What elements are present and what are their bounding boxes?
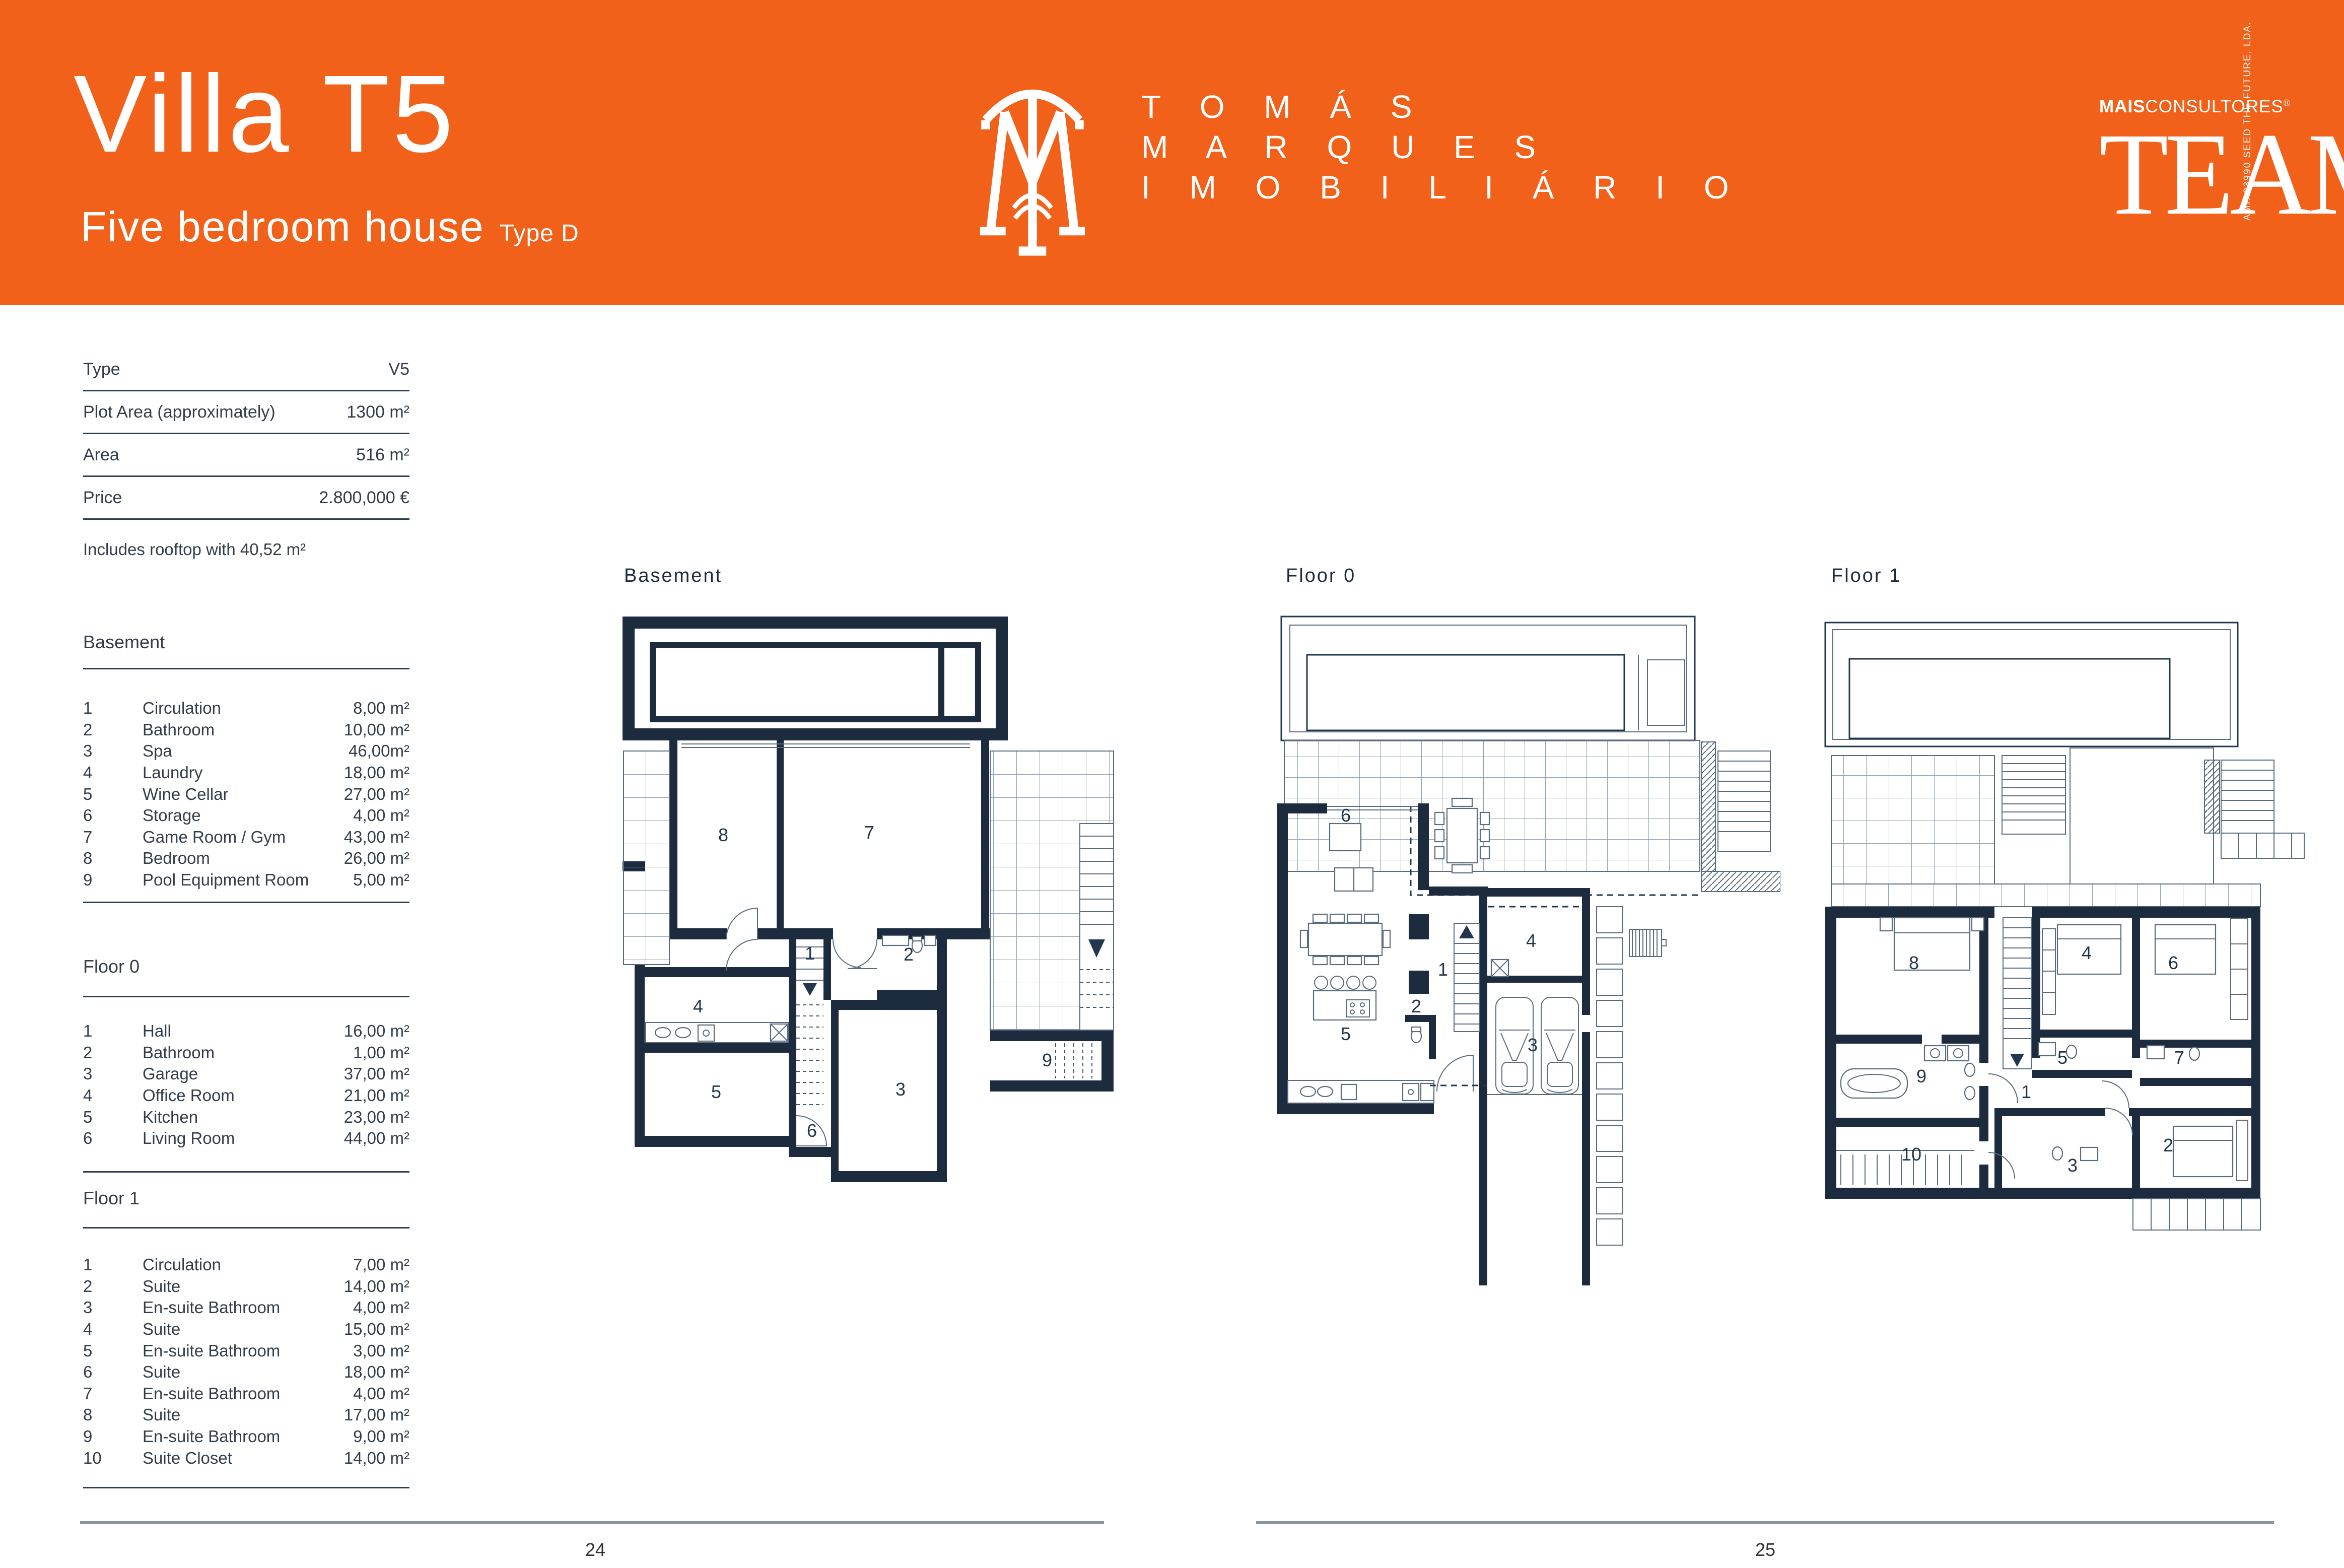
cell: Type	[83, 360, 388, 379]
cell: Suite	[143, 1405, 344, 1424]
room-number-label: 6	[1341, 805, 1351, 826]
room-number-label: 2	[904, 944, 914, 965]
footer-rule-left	[80, 1521, 1104, 1524]
rooftop-note: Includes rooftop with 40,52 m²	[83, 540, 306, 559]
footer-rule-right	[1256, 1521, 2274, 1524]
section-floor1: Floor 1 1Circulation7,00 m²2Suite14,00 m…	[83, 1188, 409, 1500]
car	[1541, 997, 1578, 1094]
room-number-label: 2	[1411, 996, 1421, 1016]
cell: 1300 m²	[347, 402, 409, 422]
cell: 6	[83, 1129, 143, 1148]
entrance-door	[1430, 1055, 1487, 1092]
cell: 5	[83, 785, 143, 804]
cell: 7	[83, 1384, 143, 1403]
divider	[83, 668, 409, 669]
section-floor1-rows: 1Circulation7,00 m²2Suite14,00 m²3En-sui…	[83, 1254, 409, 1469]
room-number-label: 9	[1916, 1066, 1926, 1086]
room-number-label: 1	[1438, 959, 1448, 980]
pool-equipment-room-stairs	[1056, 1043, 1092, 1078]
room-number-label: 1	[2021, 1081, 2031, 1102]
section-basement: Basement 1Circulation8,00 m²2Bathroom10,…	[83, 632, 409, 914]
subtitle-type: Type D	[500, 220, 579, 247]
planter-strip	[1701, 742, 1715, 871]
brand-line-3: I M O B I L I Á R I O	[1141, 167, 1744, 208]
cell: 9,00 m²	[353, 1427, 409, 1446]
cell: Wine Cellar	[143, 785, 344, 804]
cell: Circulation	[143, 699, 353, 718]
page-number-left: 24	[575, 1539, 615, 1560]
cell: Plot Area (approximately)	[83, 402, 347, 422]
room-number-label: 8	[718, 825, 728, 845]
brand-line-1: T O M Á S	[1141, 87, 1744, 127]
table-row: 1Circulation8,00 m²	[83, 698, 409, 719]
cell: Laundry	[143, 763, 344, 782]
cell: 1	[83, 699, 143, 718]
cell: 3	[83, 741, 143, 761]
room-number-label: 6	[807, 1120, 817, 1141]
cell: 6	[83, 1362, 143, 1382]
tm-monogram-icon	[957, 64, 1108, 261]
page-number-right: 25	[1745, 1539, 1785, 1560]
room-number-label: 2	[2163, 1135, 2173, 1155]
planter-strip	[2204, 760, 2220, 833]
cell: 2	[83, 1043, 143, 1062]
cell: 3	[83, 1064, 143, 1083]
section-basement-rows: 1Circulation8,00 m²2Bathroom10,00 m²3Spa…	[83, 698, 409, 891]
balcony	[2133, 1199, 2260, 1230]
cell: 10	[83, 1449, 143, 1468]
room-number-label: 4	[693, 996, 703, 1016]
terrace-stairs	[1080, 824, 1114, 1030]
garden-stairs	[1718, 751, 1770, 852]
laundry-fixtures	[646, 1022, 789, 1043]
table-row: 6Living Room44,00 m²	[83, 1128, 409, 1149]
table-row: 5En-suite Bathroom3,00 m²	[83, 1340, 409, 1361]
bath9-fixtures	[1841, 1046, 1975, 1100]
cell: 4,00 m²	[353, 1298, 409, 1317]
room-number-label: 5	[1341, 1024, 1351, 1044]
floor0-floorplan: 651243	[1277, 612, 1780, 1287]
brand-line-2: M A R Q U E S	[1141, 127, 1744, 167]
header-band: Villa T5 Five bedroom houseType D	[0, 0, 2344, 305]
cell: 15,00 m²	[344, 1320, 409, 1339]
cell: 17,00 m²	[344, 1405, 409, 1424]
section-floor0: Floor 0 1Hall16,00 m²2Bathroom1,00 m²3Ga…	[83, 956, 409, 1183]
table-row: Area516 m²	[83, 434, 409, 477]
room-number-label: 3	[2067, 1155, 2078, 1176]
cell: Storage	[143, 806, 353, 825]
subtitle-text: Five bedroom house	[81, 203, 485, 250]
table-row: 1Circulation7,00 m²	[83, 1254, 409, 1276]
suite2-furniture	[2173, 1120, 2248, 1181]
partner-license-vertical-text: AMI: 23990 SEED THE FUTURE, LDA.	[2242, 21, 2253, 221]
table-row: 7Game Room / Gym43,00 m²	[83, 827, 409, 848]
floor0-walls	[1277, 803, 1590, 1285]
cell: Garage	[143, 1064, 344, 1083]
suite4-furniture	[2042, 925, 2121, 1014]
cell: Hall	[143, 1021, 344, 1041]
floor1-stairs	[2003, 918, 2031, 1069]
cell: 7,00 m²	[353, 1255, 409, 1274]
brand-wordmark: T O M Á S M A R Q U E S I M O B I L I Á …	[1141, 87, 1744, 208]
skylight-slats	[2002, 756, 2065, 834]
cell: 16,00 m²	[344, 1021, 409, 1041]
cell: 14,00 m²	[344, 1277, 409, 1296]
cell: 5,00 m²	[353, 870, 409, 890]
cell: 18,00 m²	[344, 1362, 409, 1382]
table-row: 1Hall16,00 m²	[83, 1020, 409, 1042]
cell: 4	[83, 1320, 143, 1339]
divider	[83, 902, 409, 903]
cell: 8,00 m²	[353, 699, 409, 718]
section-basement-title: Basement	[83, 632, 165, 653]
section-floor1-title: Floor 1	[83, 1188, 140, 1209]
room-number-label: 7	[864, 822, 874, 843]
table-row: 4Office Room21,00 m²	[83, 1085, 409, 1107]
hall-stairs	[1454, 923, 1479, 1032]
door-gap	[1979, 1063, 1988, 1086]
cell: Suite	[143, 1362, 344, 1382]
cell: 3,00 m²	[353, 1341, 409, 1360]
cell: 21,00 m²	[344, 1086, 409, 1105]
basement-plan-title: Basement	[624, 565, 722, 587]
cell: Living Room	[143, 1129, 344, 1148]
cell: Spa	[143, 741, 349, 761]
bath7-fixtures	[2147, 1046, 2199, 1060]
suite8-furniture	[1880, 918, 1984, 970]
cell: 5	[83, 1108, 143, 1127]
door-arcs	[1988, 1074, 2132, 1179]
cell: 23,00 m²	[344, 1108, 409, 1127]
table-row: 2Bathroom1,00 m²	[83, 1042, 409, 1064]
room-number-label: 10	[1901, 1144, 1921, 1165]
divider	[83, 1487, 409, 1488]
cell: Bathroom	[143, 1043, 353, 1062]
cell: 43,00 m²	[344, 828, 409, 847]
pool	[1281, 617, 1695, 740]
roof-terrace	[1831, 756, 1994, 884]
brochure-page: Villa T5 Five bedroom houseType D	[0, 0, 2344, 1568]
table-row: 3En-suite Bathroom4,00 m²	[83, 1297, 409, 1319]
section-floor0-title: Floor 0	[83, 956, 140, 977]
cell: 5	[83, 1341, 143, 1360]
cell: 46,00m²	[349, 741, 409, 761]
cell: 516 m²	[356, 445, 409, 465]
floor1-floorplan: 89104567123	[1821, 617, 2317, 1251]
cell: 7	[83, 828, 143, 847]
room-number-label: 8	[1909, 952, 1919, 973]
roof-edge-band	[1831, 884, 2260, 907]
room-number-label: 4	[1526, 930, 1536, 951]
room-number-label: 5	[2057, 1047, 2067, 1068]
table-row: 5Wine Cellar27,00 m²	[83, 783, 409, 805]
divider	[83, 1227, 409, 1229]
cell: 4	[83, 1086, 143, 1105]
cell: 8	[83, 1405, 143, 1424]
cell: Bedroom	[143, 849, 344, 868]
cell: 4	[83, 763, 143, 782]
cell: En-suite Bathroom	[143, 1298, 353, 1317]
stepping-stones	[1597, 907, 1623, 1245]
cell: 1,00 m²	[353, 1043, 409, 1062]
table-row: 2Suite14,00 m²	[83, 1276, 409, 1298]
room-number-label: 7	[2174, 1047, 2184, 1068]
table-row: 4Laundry18,00 m²	[83, 762, 409, 784]
cell: Bathroom	[143, 720, 344, 739]
table-row: Price2.800,000 €	[83, 477, 409, 520]
basement-stairs	[796, 947, 826, 1146]
cell: 9	[83, 1427, 143, 1446]
cell: Suite Closet	[143, 1449, 344, 1468]
table-row: 9En-suite Bathroom9,00 m²	[83, 1426, 409, 1448]
open-roof	[2070, 748, 2214, 884]
table-row: 5Kitchen23,00 m²	[83, 1106, 409, 1128]
cell: 10,00 m²	[344, 720, 409, 739]
cell: 18,00 m²	[344, 763, 409, 782]
room-number-label: 5	[711, 1081, 721, 1102]
cell: 2	[83, 720, 143, 739]
registered-mark: ®	[2284, 98, 2291, 108]
details-table: TypeV5Plot Area (approximately)1300 m²Ar…	[83, 349, 409, 520]
cell: 1	[83, 1255, 143, 1274]
table-row: TypeV5	[83, 349, 409, 391]
cell: Suite	[143, 1277, 344, 1296]
cell: 2.800,000 €	[319, 488, 409, 508]
cell: En-suite Bathroom	[143, 1384, 353, 1403]
divider	[83, 996, 409, 997]
table-row: Plot Area (approximately)1300 m²	[83, 391, 409, 434]
basement-floorplan: 879124563	[623, 612, 1121, 1232]
floor1-plan-title: Floor 1	[1831, 565, 1901, 587]
cell: 2	[83, 1277, 143, 1296]
section-floor0-rows: 1Hall16,00 m²2Bathroom1,00 m²3Garage37,0…	[83, 1020, 409, 1149]
garage-side-door	[1582, 1015, 1590, 1032]
table-row: 6Storage4,00 m²	[83, 805, 409, 827]
cell: 44,00 m²	[344, 1129, 409, 1148]
cell: Price	[83, 488, 319, 508]
table-row: 3Spa46,00m²	[83, 740, 409, 762]
table-row: 6Suite18,00 m²	[83, 1361, 409, 1383]
cell: En-suite Bathroom	[143, 1341, 353, 1360]
cell: 4,00 m²	[353, 1384, 409, 1403]
partner-logo: MAISCONSULTORES® TEAM	[2099, 97, 2344, 224]
cell: 1	[83, 1021, 143, 1041]
door-gap	[1979, 1141, 1988, 1165]
cell: Game Room / Gym	[143, 828, 344, 847]
table-row: 9Pool Equipment Room5,00 m²	[83, 869, 409, 891]
table-row: 2Bathroom10,00 m²	[83, 719, 409, 741]
planter-band	[1701, 871, 1780, 892]
exterior-stairs	[2221, 760, 2304, 858]
cell: Office Room	[143, 1086, 344, 1105]
partner-team-logotype: TEAM	[2099, 120, 2344, 228]
cell: 27,00 m²	[344, 785, 409, 804]
cell: 14,00 m²	[344, 1449, 409, 1468]
floor0-plan-title: Floor 0	[1286, 565, 1356, 587]
table-row: 10Suite Closet14,00 m²	[83, 1447, 409, 1469]
side-gate	[1629, 929, 1666, 957]
cell: 4,00 m²	[353, 806, 409, 825]
table-row: 8Suite17,00 m²	[83, 1404, 409, 1426]
table-row: 3Garage37,00 m²	[83, 1063, 409, 1085]
room-number-label: 6	[2168, 952, 2178, 973]
cell: V5	[388, 360, 409, 379]
room-number-label: 3	[1528, 1035, 1538, 1055]
room-number-label: 9	[1042, 1050, 1052, 1070]
page-subtitle: Five bedroom houseType D	[81, 202, 579, 251]
cell: Area	[83, 445, 356, 465]
cell: 9	[83, 870, 143, 890]
cell: 26,00 m²	[344, 849, 409, 868]
cell: Kitchen	[143, 1108, 344, 1127]
pool-outline	[1825, 623, 2238, 746]
divider	[83, 1171, 409, 1173]
table-row: 7En-suite Bathroom4,00 m²	[83, 1383, 409, 1405]
room-number-label: 3	[895, 1079, 906, 1100]
page-title: Villa T5	[74, 59, 456, 169]
cell: Suite	[143, 1320, 344, 1339]
cell: 37,00 m²	[344, 1064, 409, 1083]
cell: Circulation	[143, 1255, 353, 1274]
room-number-label: 4	[2082, 942, 2092, 963]
table-row: 8Bedroom26,00 m²	[83, 848, 409, 869]
cell: Pool Equipment Room	[143, 870, 353, 890]
cell: 8	[83, 849, 143, 868]
room-number-label: 1	[805, 943, 815, 964]
cell: 6	[83, 806, 143, 825]
cell: 3	[83, 1298, 143, 1317]
wc-fixtures	[1411, 1027, 1421, 1043]
basement-lightwell	[624, 751, 669, 965]
table-row: 4Suite15,00 m²	[83, 1319, 409, 1340]
cell: En-suite Bathroom	[143, 1427, 353, 1446]
